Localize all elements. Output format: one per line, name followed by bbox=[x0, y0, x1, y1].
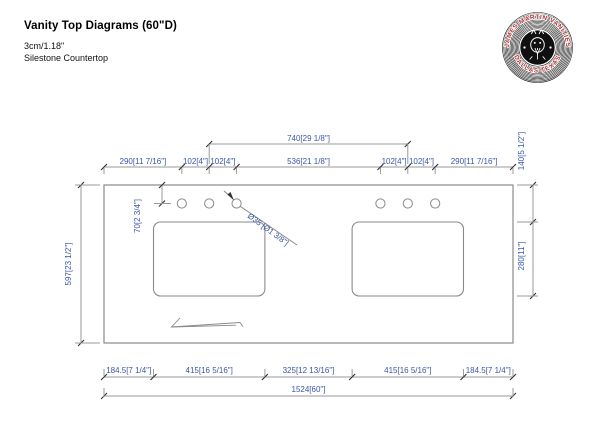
faucet-hole bbox=[376, 199, 385, 208]
bottom-chain-label: 325[12 13/16"] bbox=[283, 366, 335, 375]
top-chain-label: 290[11 7/16"] bbox=[451, 157, 498, 166]
leader-arrowhead bbox=[228, 192, 235, 201]
faucet-hole bbox=[403, 199, 412, 208]
top-chain-label: 102[4"] bbox=[409, 157, 434, 166]
vanity-top-spec-page: Vanity Top Diagrams (60"D) 3cm/1.18" Sil… bbox=[0, 0, 600, 425]
top-chain-label: 102[4"] bbox=[382, 157, 407, 166]
faucet-hole bbox=[232, 199, 241, 208]
faucet-hole bbox=[177, 199, 186, 208]
hole-offset-label: 70[2 3/4"] bbox=[133, 199, 142, 233]
left-height-label: 597[23 1/2"] bbox=[64, 243, 73, 286]
vanity-top-drawing: 290[11 7/16"]102[4"]102[4"]536[21 1/8"]1… bbox=[0, 0, 600, 425]
sink-depth-label: 280[11"] bbox=[517, 242, 526, 271]
top-chain-label: 102[4"] bbox=[210, 157, 235, 166]
top-chain-label: 536[21 1/8"] bbox=[287, 157, 330, 166]
countertop-outline bbox=[104, 185, 513, 343]
hole-diameter-label: Ø35 [Ø1 3/8"] bbox=[246, 211, 290, 247]
top-chain-label: 102[4"] bbox=[183, 157, 208, 166]
bottom-chain-label: 415[16 5/16"] bbox=[384, 366, 431, 375]
faucet-hole bbox=[431, 199, 440, 208]
bottom-chain-label: 184.5[7 1/4"] bbox=[106, 366, 151, 375]
sink-cutout-left bbox=[154, 222, 265, 296]
bottom-chain-label: 184.5[7 1/4"] bbox=[466, 366, 511, 375]
total-width-label: 1524[60"] bbox=[292, 385, 326, 394]
faucet-hole bbox=[205, 199, 214, 208]
sink-cutout-right bbox=[352, 222, 463, 296]
top-chain-label: 290[11 7/16"] bbox=[120, 157, 167, 166]
top-span-label: 740[29 1/8"] bbox=[287, 134, 330, 143]
bottom-chain-label: 415[16 5/16"] bbox=[186, 366, 233, 375]
edge-to-sink-label: 140[5 1/2"] bbox=[517, 132, 526, 170]
